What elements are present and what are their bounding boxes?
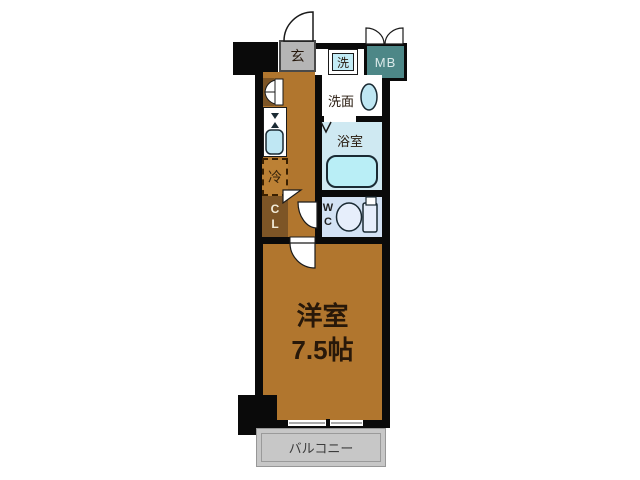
mb-door-left-icon [366,28,384,44]
mb-door-right-icon [385,28,403,44]
wall-right [382,75,390,428]
entrance-storage [263,78,274,106]
window-divider [326,419,330,427]
window-right [330,420,363,426]
window-left [288,420,326,426]
washing-machine-icon: 洗 [332,53,354,71]
main-room-label: 洋室 7.5帖 [263,299,382,367]
washroom-label: 洗面 [320,91,362,110]
meter-box-label: MB [375,55,397,70]
entrance-label: 玄 [291,46,305,66]
bathroom-label: 浴室 [326,131,374,150]
refrigerator-space: 冷 [262,158,288,196]
wall-room-top-right [315,237,390,244]
balcony-label: バルコニー [261,433,381,462]
balcony: バルコニー [256,428,386,467]
toilet-label: W C [321,201,335,229]
floorplan: 玄 洗 MB 洗面 浴室 W C 冷 C L 洋室 7.5帖 [0,0,640,480]
wall-left [255,70,263,421]
washer-label: 洗 [337,54,349,71]
wall-bath-wc [322,190,382,197]
wall-room-top-left [255,237,290,244]
closet: C L [262,196,288,237]
fridge-label: 冷 [268,167,282,187]
room-name: 洋室 [263,299,382,333]
entrance-room: 玄 [279,40,316,72]
kitchen-unit [263,107,287,157]
room-size: 7.5帖 [263,333,382,367]
entrance-door-arc-icon [284,12,313,41]
